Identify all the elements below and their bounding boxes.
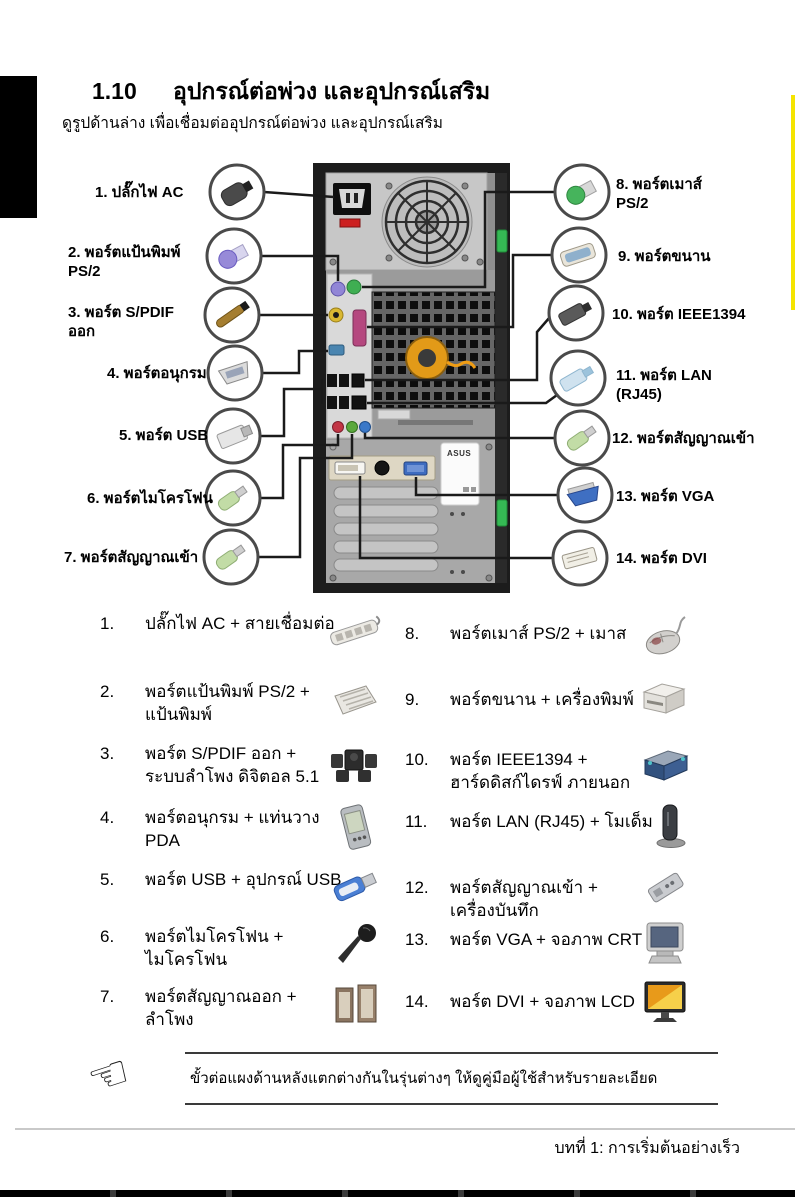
diagram-label-8: 8. พอร์ตเมาส์PS/2 <box>616 175 702 213</box>
pda-icon <box>330 802 382 854</box>
lan-port <box>352 396 366 409</box>
list-item-3-text: พอร์ต S/PDIF ออก +ระบบลำโพง ดิจิตอล 5.1 <box>145 742 319 788</box>
list-item-8-text: พอร์ตเมาส์ PS/2 + เมาส <box>450 622 626 645</box>
diagram-label-1: 1. ปลั๊กไฟ AC <box>95 183 183 202</box>
list-item-13-number: 13. <box>405 928 429 951</box>
recorder-icon <box>640 862 692 914</box>
list-item-5-text: พอร์ต USB + อุปกรณ์ USB <box>145 868 342 891</box>
mic-jack <box>333 422 344 433</box>
usb-port <box>327 396 337 409</box>
lcd-monitor-icon <box>640 978 692 1030</box>
page-bottom-edge <box>0 1190 795 1197</box>
list-item-1-number: 1. <box>100 612 114 635</box>
microphone-icon <box>330 920 382 972</box>
diagram-label-7: 7. พอร์ตสัญญาณเข้า <box>64 548 198 567</box>
list-item-11-text: พอร์ต LAN (RJ45) + โมเด็ม <box>450 810 653 833</box>
list-item-1-text: ปลั๊กไฟ AC + สายเชื่อมต่อ <box>145 612 335 635</box>
list-item-6-text: พอร์ตไมโครโฟน +ไมโครโฟน <box>145 925 283 971</box>
green-clip <box>497 500 507 526</box>
list-item-14-text: พอร์ต DVI + จอภาพ LCD <box>450 990 635 1013</box>
list-item-7-number: 7. <box>100 985 114 1008</box>
usb-flash-drive-icon <box>330 860 382 912</box>
diagram-label-13: 13. พอร์ต VGA <box>616 487 714 506</box>
list-item-8-number: 8. <box>405 622 419 645</box>
line-out-jack <box>347 422 358 433</box>
list-item-5-number: 5. <box>100 868 114 891</box>
list-item-4-number: 4. <box>100 806 114 829</box>
asus-sticker-text: ASUS <box>447 449 471 458</box>
model-sticker <box>378 410 410 419</box>
diagram-label-6: 6. พอร์ตไมโครโฟน <box>87 489 213 508</box>
diagram-label-5: 5. พอร์ต USB <box>119 426 208 445</box>
io-panel <box>327 274 372 438</box>
modem-icon <box>644 800 696 852</box>
list-item-11-number: 11. <box>405 810 427 833</box>
list-item-10-text: พอร์ต IEEE1394 +ฮาร์ดดิสก์ไดรฟ์ ภายนอก <box>450 748 630 794</box>
power-strip-icon <box>325 606 383 658</box>
diagram-label-9: 9. พอร์ตขนาน <box>618 247 711 266</box>
list-item-3-number: 3. <box>100 742 114 765</box>
crt-monitor-icon <box>640 918 692 970</box>
diagram-label-14: 14. พอร์ต DVI <box>616 549 707 568</box>
external-hdd-icon <box>638 740 694 792</box>
usb-port <box>327 374 337 387</box>
serial-port <box>329 345 344 355</box>
list-item-6-number: 6. <box>100 925 114 948</box>
note-rule-top <box>185 1052 718 1054</box>
diagram-label-2: 2. พอร์ตแป้นพิมพ์PS/2 <box>68 243 180 281</box>
diagram-label-4: 4. พอร์ตอนุกรม <box>107 364 207 383</box>
list-item-9-text: พอร์ตขนาน + เครื่องพิมพ์ <box>450 688 634 711</box>
ps2-mouse-port <box>347 280 361 294</box>
list-item-2-number: 2. <box>100 680 114 703</box>
green-clip <box>497 230 507 252</box>
usb-port <box>339 396 349 409</box>
note-rule-bottom <box>185 1103 718 1105</box>
list-item-12-number: 12. <box>405 876 429 899</box>
voltage-switch <box>340 219 360 227</box>
list-item-7-text: พอร์ตสัญญาณออก +ลำโพง <box>145 985 297 1031</box>
footer-rule <box>15 1128 795 1130</box>
rear-panel-diagram: ASUS <box>0 0 795 600</box>
footer-chapter-label: บทที่ 1: การเริ่มต้นอย่างเร็ว <box>554 1136 740 1161</box>
diagram-label-3: 3. พอร์ต S/PDIFออก <box>68 303 174 341</box>
usb-port <box>339 374 349 387</box>
list-item-10-number: 10. <box>405 748 429 771</box>
list-item-9-number: 9. <box>405 688 419 711</box>
diagram-label-11: 11. พอร์ต LAN(RJ45) <box>616 366 712 404</box>
list-item-2-text: พอร์ตแป้นพิมพ์ PS/2 +แป้นพิมพ์ <box>145 680 310 726</box>
parallel-port <box>353 310 366 346</box>
diagram-label-10: 10. พอร์ต IEEE1394 <box>612 305 745 324</box>
speakers-icon <box>330 978 382 1030</box>
note-text: ขั้วต่อแผงด้านหลังแตกต่างกันในรุ่นต่างๆ … <box>190 1066 657 1090</box>
list-item-12-text: พอร์ตสัญญาณเข้า +เครื่องบันทึก <box>450 876 598 922</box>
list-item-4-text: พอร์ตอนุกรม + แท่นวางPDA <box>145 806 320 852</box>
diagram-label-12: 12. พอร์ตสัญญาณเข้า <box>612 429 755 448</box>
printer-icon <box>636 672 692 724</box>
ps2-keyboard-port <box>331 282 345 296</box>
list-item-14-number: 14. <box>405 990 429 1013</box>
list-item-13-text: พอร์ต VGA + จอภาพ CRT <box>450 928 642 951</box>
tower-chassis: ASUS <box>313 163 510 593</box>
keyboard-icon <box>328 678 380 730</box>
ieee1394-port <box>352 374 364 387</box>
mouse-icon <box>638 612 690 664</box>
line-in-jack <box>360 422 371 433</box>
pointing-hand-icon: ☞ <box>81 1043 137 1107</box>
speaker-system-icon <box>328 738 380 790</box>
svideo-port <box>375 461 389 475</box>
manual-page: 1.10อุปกรณ์ต่อพ่วง และอุปกรณ์เสริม ดูรูป… <box>0 0 795 1197</box>
